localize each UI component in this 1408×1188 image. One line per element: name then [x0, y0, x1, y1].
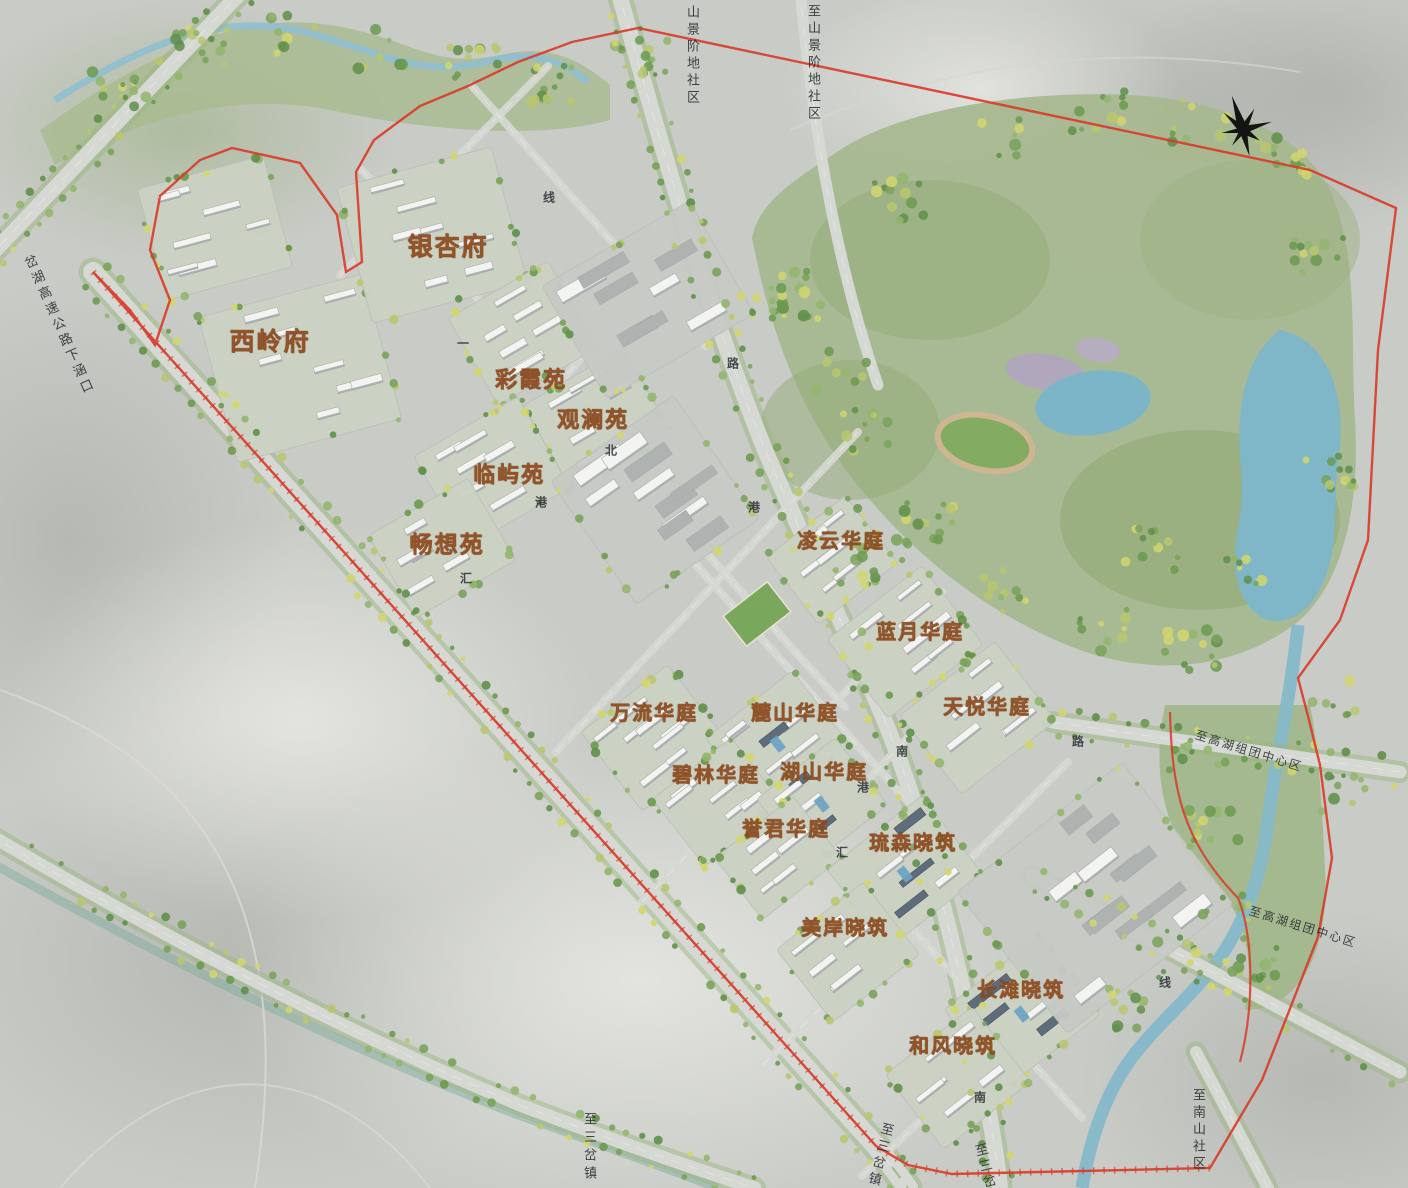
master-plan-map: 银杏府西岭府彩霞苑观澜苑临屿苑畅想苑凌云华庭蓝月华庭天悦华庭万流华庭麓山华庭碧林…: [0, 0, 1408, 1188]
site-plan-canvas: [0, 0, 1408, 1188]
